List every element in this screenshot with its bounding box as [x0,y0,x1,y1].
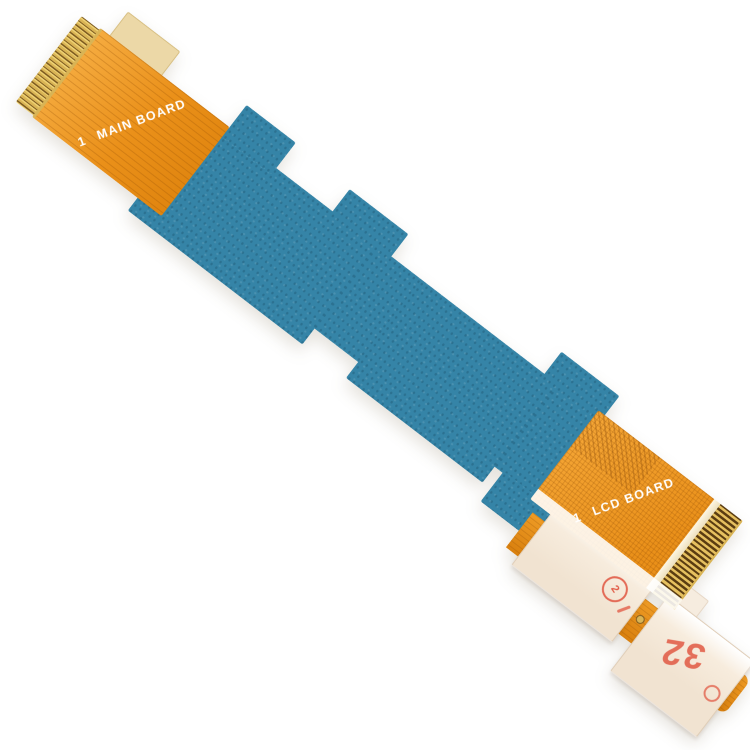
circle-mark-icon [700,682,724,706]
qc-stamp-icon: 2 [597,571,633,607]
qc-tick-icon [617,605,631,612]
main-board-label-number: 1 [76,134,89,150]
handwritten-mark: 32 [655,630,710,678]
main-board-label-text: MAIN BOARD [95,96,188,142]
flex-cable: 1MAIN BOARD 2 32 1LCD BOARD [0,0,750,750]
main-board-label: 1MAIN BOARD [76,96,188,149]
product-photo-canvas: 1MAIN BOARD 2 32 1LCD BOARD [0,0,750,750]
